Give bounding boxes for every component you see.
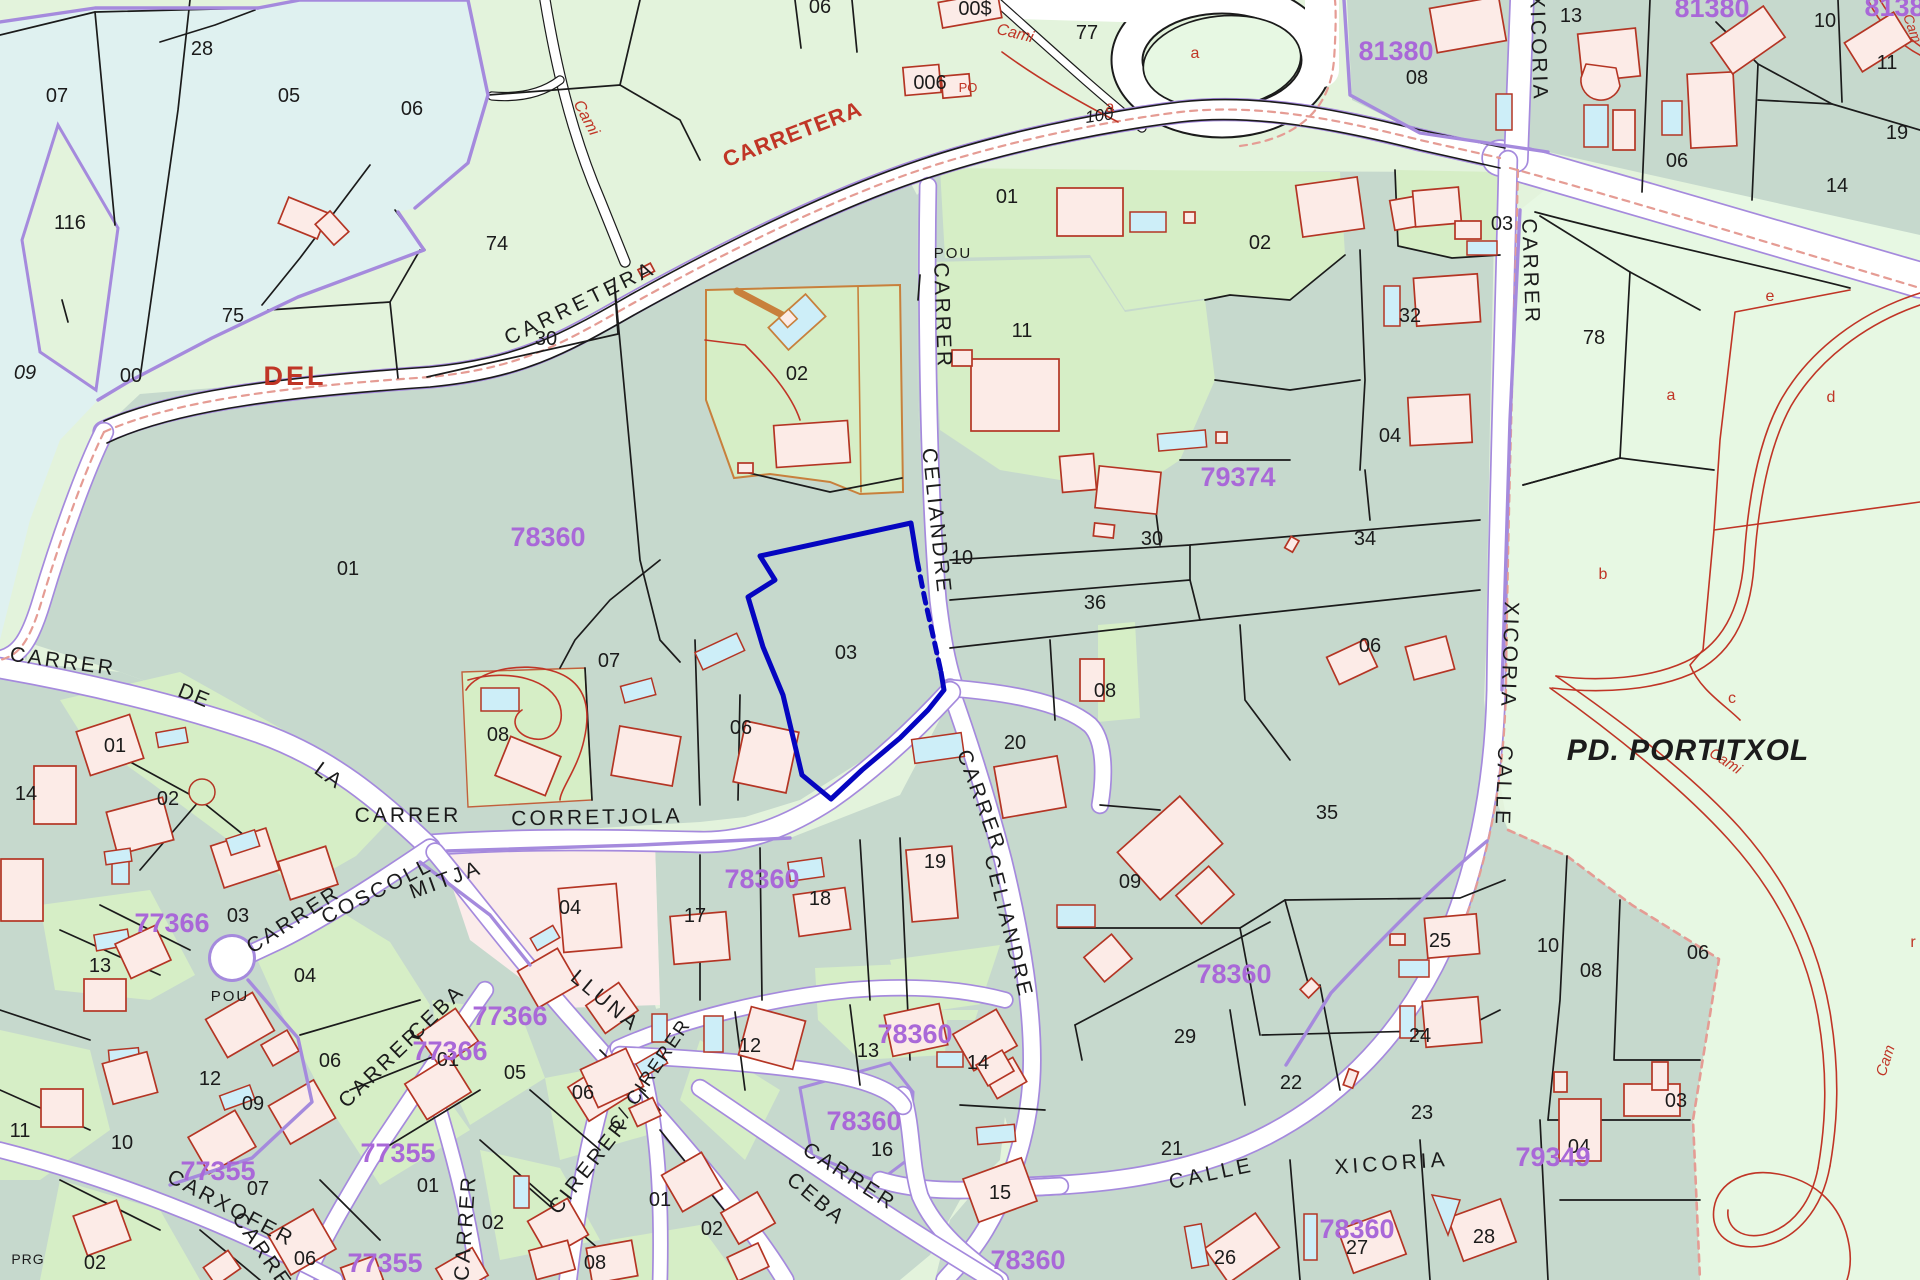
svg-text:05: 05 [504,1062,526,1084]
svg-text:01: 01 [417,1175,439,1197]
svg-text:81380: 81380 [1864,0,1920,22]
svg-text:POU: POU [211,988,250,1005]
svg-text:11: 11 [1877,52,1898,74]
svg-text:PO: PO [959,80,978,95]
svg-text:09: 09 [14,362,36,384]
svg-text:30: 30 [1141,528,1163,550]
svg-text:29: 29 [1174,1026,1196,1048]
svg-text:01: 01 [649,1189,671,1211]
svg-text:11: 11 [1012,320,1033,342]
svg-text:23: 23 [1411,1102,1433,1124]
svg-text:28: 28 [191,38,213,60]
svg-text:a: a [1667,387,1676,404]
svg-text:07: 07 [46,85,68,107]
svg-text:09: 09 [1119,871,1141,893]
svg-text:24: 24 [1409,1025,1431,1047]
svg-text:CARRER: CARRER [929,262,956,369]
svg-text:16: 16 [871,1139,893,1161]
svg-text:DEL: DEL [264,361,327,391]
svg-text:81380: 81380 [1674,0,1749,23]
svg-text:03: 03 [1491,213,1513,235]
svg-text:19: 19 [924,851,946,873]
svg-text:12: 12 [199,1068,221,1090]
svg-text:77355: 77355 [180,1156,255,1186]
svg-text:e: e [1766,288,1775,305]
svg-text:08: 08 [1406,67,1428,89]
svg-text:06: 06 [294,1248,316,1270]
svg-text:12: 12 [739,1035,761,1057]
svg-text:r: r [1910,934,1916,951]
svg-text:01: 01 [337,558,359,580]
svg-text:28: 28 [1473,1226,1495,1248]
svg-text:POU: POU [934,245,973,262]
svg-text:14: 14 [1826,175,1848,197]
svg-text:77366: 77366 [472,1001,547,1031]
svg-text:75: 75 [222,305,244,327]
svg-text:006: 006 [913,72,946,94]
svg-text:20: 20 [1004,732,1026,754]
svg-text:CARRER: CARRER [1517,218,1544,325]
svg-text:d: d [1827,389,1836,406]
svg-text:XICORIA: XICORIA [1525,0,1552,102]
svg-text:78360: 78360 [1196,959,1271,989]
svg-text:17: 17 [684,905,706,927]
svg-text:00$: 00$ [958,0,991,20]
svg-text:79349: 79349 [1515,1142,1590,1172]
svg-text:81380: 81380 [1358,36,1433,66]
svg-text:CALLE: CALLE [1491,745,1517,827]
svg-text:116: 116 [54,212,86,234]
svg-text:26: 26 [1214,1247,1236,1269]
svg-text:CORRETJOLA: CORRETJOLA [511,805,683,831]
svg-text:77: 77 [1076,22,1098,44]
svg-text:06: 06 [809,0,831,18]
svg-text:30: 30 [535,328,557,350]
svg-text:08: 08 [1094,680,1116,702]
svg-text:XICORIA: XICORIA [1496,601,1523,709]
svg-text:04: 04 [294,965,316,987]
svg-text:77355: 77355 [360,1138,435,1168]
svg-text:78360: 78360 [724,864,799,894]
svg-text:13: 13 [1560,5,1582,27]
svg-text:01: 01 [104,735,126,757]
svg-text:22: 22 [1280,1072,1302,1094]
svg-text:03: 03 [835,642,857,664]
svg-text:10: 10 [1814,10,1836,32]
svg-text:78360: 78360 [877,1019,952,1049]
svg-text:08: 08 [1580,960,1602,982]
svg-text:06: 06 [401,98,423,120]
svg-text:06: 06 [319,1050,341,1072]
svg-text:02: 02 [1249,232,1271,254]
svg-text:35: 35 [1316,802,1338,824]
svg-text:00: 00 [120,365,142,387]
svg-text:78360: 78360 [1319,1214,1394,1244]
svg-text:a: a [1106,99,1115,116]
svg-text:08: 08 [487,724,509,746]
svg-text:03: 03 [227,905,249,927]
svg-text:PD. PORTITXOL: PD. PORTITXOL [1567,734,1809,767]
svg-text:03: 03 [1665,1090,1687,1112]
svg-text:04: 04 [559,897,581,919]
svg-text:21: 21 [1161,1138,1183,1160]
svg-text:14: 14 [967,1052,989,1074]
svg-text:10: 10 [1537,935,1559,957]
svg-text:78360: 78360 [990,1245,1065,1275]
svg-text:06: 06 [1687,942,1709,964]
svg-text:02: 02 [84,1252,106,1274]
svg-text:CARRER: CARRER [355,804,462,827]
svg-text:c: c [1728,690,1736,707]
svg-text:06: 06 [572,1082,594,1104]
svg-text:32: 32 [1399,305,1421,327]
svg-text:18: 18 [809,888,831,910]
svg-text:78: 78 [1583,327,1605,349]
svg-text:06: 06 [1666,150,1688,172]
svg-text:09: 09 [242,1093,264,1115]
svg-text:02: 02 [701,1218,723,1240]
svg-text:77366: 77366 [412,1036,487,1066]
svg-text:04: 04 [1379,425,1401,447]
svg-text:10: 10 [111,1132,133,1154]
svg-text:36: 36 [1084,592,1106,614]
svg-text:79374: 79374 [1200,462,1275,492]
svg-text:02: 02 [157,788,179,810]
svg-text:15: 15 [989,1182,1011,1204]
svg-text:78360: 78360 [826,1106,901,1136]
svg-text:06: 06 [730,717,752,739]
svg-text:02: 02 [482,1212,504,1234]
svg-text:a: a [1191,45,1200,62]
svg-text:b: b [1599,566,1608,583]
svg-text:07: 07 [598,650,620,672]
svg-text:19: 19 [1886,122,1908,144]
svg-text:34: 34 [1354,528,1376,550]
svg-text:08: 08 [584,1252,606,1274]
svg-text:78360: 78360 [510,522,585,552]
svg-text:01: 01 [996,186,1018,208]
svg-text:05: 05 [278,85,300,107]
svg-text:14: 14 [15,783,37,805]
svg-text:25: 25 [1429,930,1451,952]
svg-text:13: 13 [89,955,111,977]
svg-text:11: 11 [10,1120,31,1142]
svg-text:10: 10 [951,547,973,569]
svg-text:77366: 77366 [134,908,209,938]
svg-text:PRG: PRG [11,1251,44,1267]
svg-text:06: 06 [1359,635,1381,657]
svg-text:02: 02 [786,363,808,385]
svg-text:13: 13 [857,1040,879,1062]
svg-text:77355: 77355 [347,1248,422,1278]
svg-text:74: 74 [486,233,508,255]
